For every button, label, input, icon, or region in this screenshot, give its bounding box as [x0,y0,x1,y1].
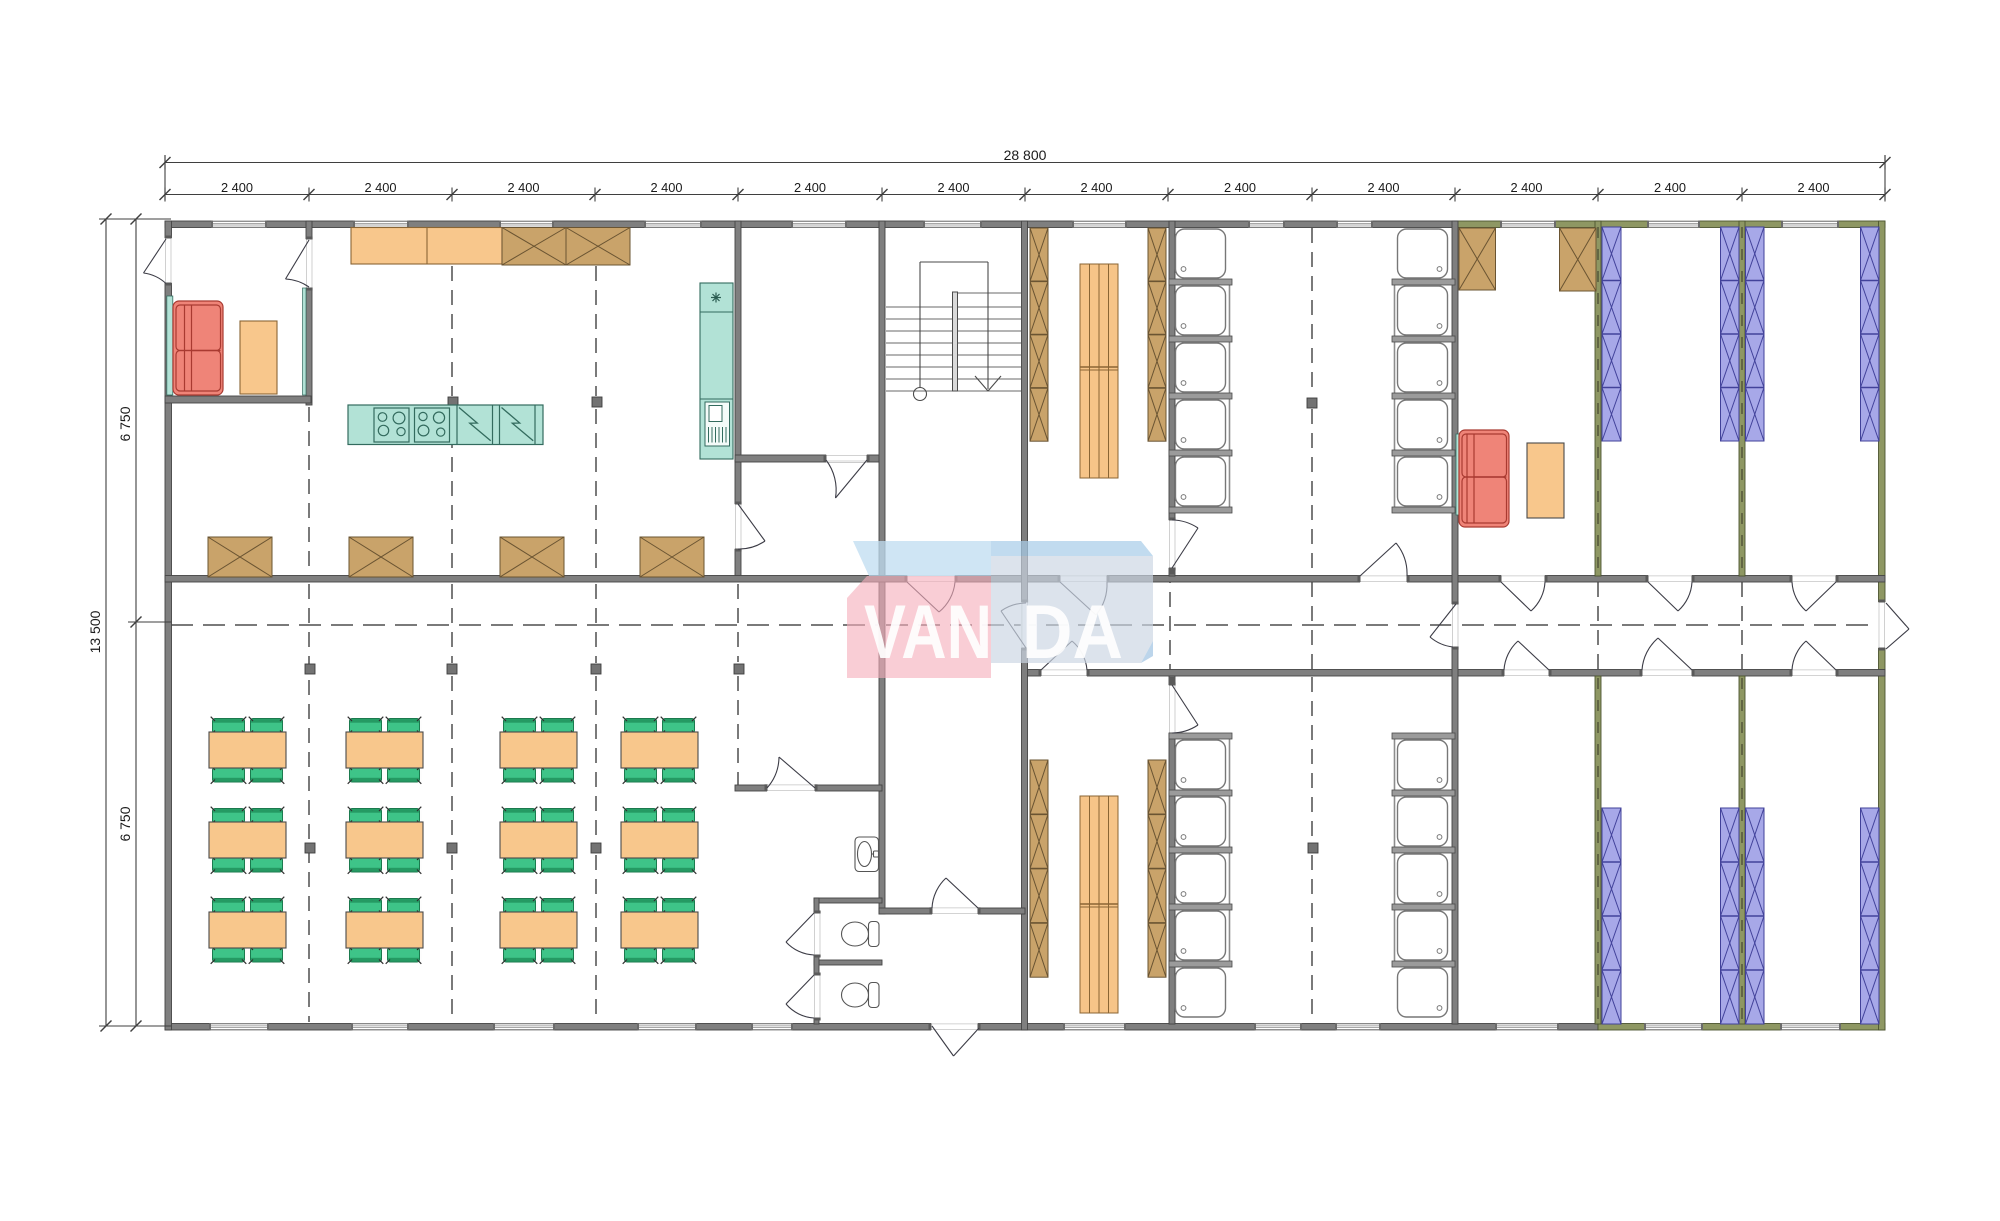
svg-text:2 400: 2 400 [221,180,253,195]
svg-text:2 400: 2 400 [650,180,682,195]
svg-text:2 400: 2 400 [507,180,539,195]
svg-text:2 400: 2 400 [1654,180,1686,195]
svg-text:DA: DA [1022,590,1123,675]
svg-text:2 400: 2 400 [1224,180,1256,195]
svg-text:2 400: 2 400 [1367,180,1399,195]
svg-text:28 800: 28 800 [1004,147,1047,163]
svg-text:13 500: 13 500 [87,610,103,653]
svg-text:6 750: 6 750 [117,406,133,441]
svg-text:2 400: 2 400 [937,180,969,195]
svg-text:VAN: VAN [864,590,992,675]
svg-text:2 400: 2 400 [794,180,826,195]
svg-text:2 400: 2 400 [1080,180,1112,195]
svg-text:2 400: 2 400 [1510,180,1542,195]
svg-text:2 400: 2 400 [1797,180,1829,195]
svg-text:2 400: 2 400 [364,180,396,195]
svg-text:6 750: 6 750 [117,806,133,841]
